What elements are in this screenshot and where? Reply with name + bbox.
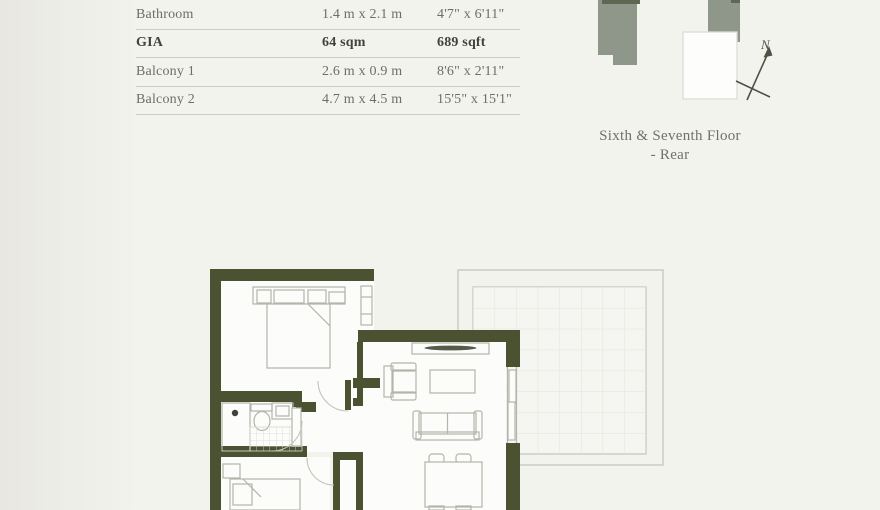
bathroom-door-leaf: [292, 408, 301, 446]
dining-table: [425, 462, 482, 507]
building-footprint-left: [598, 0, 637, 65]
row-metric: 4.7 m x 4.5 m: [322, 92, 437, 108]
floorplan-page: Bathroom 1.4 m x 2.1 m 4'7" x 6'11" GIA …: [0, 0, 880, 510]
building-right-highlight: [731, 0, 740, 3]
dimensions-table: Bathroom 1.4 m x 2.1 m 4'7" x 6'11" GIA …: [136, 1, 520, 115]
wardrobe: [361, 286, 372, 325]
north-label: N: [760, 37, 771, 52]
table-row-gia: GIA 64 sqm 689 sqft: [136, 30, 520, 59]
table-row-bathroom: Bathroom 1.4 m x 2.1 m 4'7" x 6'11": [136, 1, 520, 30]
row-metric: 64 sqm: [322, 35, 437, 51]
left-edge-shadow: [0, 0, 140, 510]
double-bed: [267, 304, 330, 368]
row-imperial: 689 sqft: [437, 35, 520, 51]
north-arrow: [736, 46, 773, 100]
row-metric: 1.4 m x 2.1 m: [322, 7, 437, 23]
shower-drain: [232, 410, 238, 416]
caption-line-2: - Rear: [575, 146, 765, 165]
table-row-balcony-1: Balcony 1 2.6 m x 0.9 m 8'6" x 2'11": [136, 58, 520, 87]
building-left-highlight: [602, 0, 640, 4]
row-label: Balcony 1: [136, 64, 322, 80]
caption-line-1: Sixth & Seventh Floor: [575, 127, 765, 146]
site-plan: N: [575, 0, 825, 115]
row-label: Bathroom: [136, 7, 322, 23]
sliding-door: [508, 367, 517, 443]
tv-screen: [425, 346, 477, 351]
row-label: GIA: [136, 35, 322, 51]
unit-outline: [683, 32, 737, 99]
table-row-balcony-2: Balcony 2 4.7 m x 4.5 m 15'5" x 15'1": [136, 87, 520, 116]
floor-plan: [205, 262, 670, 510]
row-imperial: 8'6" x 2'11": [437, 64, 520, 80]
row-imperial: 15'5" x 15'1": [437, 92, 520, 108]
dining-set: [425, 454, 482, 510]
row-label: Balcony 2: [136, 92, 322, 108]
row-metric: 2.6 m x 0.9 m: [322, 64, 437, 80]
site-plan-caption: Sixth & Seventh Floor - Rear: [575, 127, 765, 165]
row-imperial: 4'7" x 6'11": [437, 7, 520, 23]
